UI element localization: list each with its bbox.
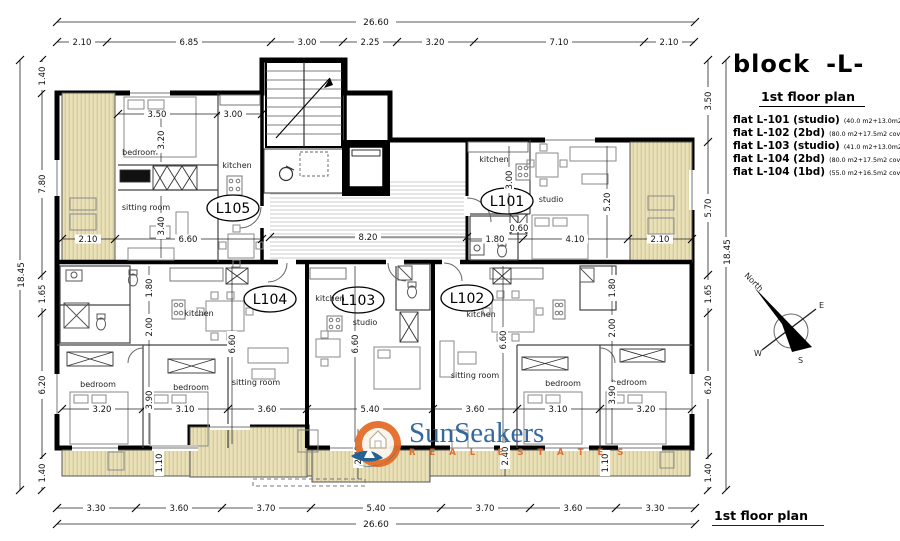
watermark-logo: SunSeakers R E A L E S T A T E S bbox=[350, 418, 629, 476]
dim-l101-kitchen-d: 3.00 bbox=[505, 171, 515, 190]
dim-right-wc-d: 1.80 bbox=[608, 279, 618, 298]
dim-l102-bed2-w: 3.20 bbox=[637, 405, 656, 415]
flat-area: (55.0 m2+16.5m2 cov.ver.) bbox=[825, 170, 900, 177]
dim-top-4: 3.20 bbox=[426, 38, 445, 48]
flat-area: (80.0 m2+17.5m2 cov.ver.) bbox=[825, 131, 900, 138]
flat-list-item: flat L-103 (studio) (41.0 m2+13.0m2 cov.… bbox=[733, 140, 897, 152]
flat-area: (80.0 m2+17.5m2 cov.ver.) bbox=[825, 157, 900, 164]
dim-left-2: 1.65 bbox=[38, 285, 48, 304]
block-title: block-L- bbox=[733, 50, 897, 78]
plan-title: 1st floor plan bbox=[759, 89, 865, 107]
dim-l101-studio-w: 4.10 bbox=[566, 235, 585, 245]
flat-list: flat L-101 (studio) (40.0 m2+13.0m2 cov.… bbox=[733, 114, 897, 178]
dim-right-2: 1.65 bbox=[704, 285, 714, 304]
dim-bot-4: 3.70 bbox=[476, 504, 495, 514]
dim-l101-bath-w: 1.80 bbox=[486, 235, 505, 245]
dim-left-wc-d: 1.80 bbox=[145, 279, 155, 298]
dim-corridor-l: 8.20 bbox=[359, 233, 378, 243]
compass-east-label: E bbox=[819, 301, 824, 310]
room-label-kitchen-l103: kitchen bbox=[315, 294, 344, 303]
dim-balcony-right-w: 2.10 bbox=[651, 235, 670, 245]
dim-l105-kitchen-w: 3.00 bbox=[224, 110, 243, 120]
flat-name: flat L-104 (2bd) bbox=[733, 153, 825, 165]
dim-top-6: 2.10 bbox=[660, 38, 679, 48]
room-label-bedroom-l104b: bedroom bbox=[173, 383, 209, 392]
dim-left-0: 1.40 bbox=[38, 67, 48, 86]
flat-list-item: flat L-102 (2bd) (80.0 m2+17.5m2 cov.ver… bbox=[733, 127, 897, 139]
floor-plan-page: L105 L101 L104 L103 L102 bedroom sitting… bbox=[0, 0, 900, 541]
dim-l104-d: 6.60 bbox=[228, 335, 238, 354]
dim-l102-d: 6.60 bbox=[499, 331, 509, 350]
room-label-bedroom-l104a: bedroom bbox=[80, 380, 116, 389]
dim-bot-1: 3.60 bbox=[170, 504, 189, 514]
flat-name: flat L-102 (2bd) bbox=[733, 127, 825, 139]
room-label-sitting-l104: sitting room bbox=[232, 378, 280, 387]
flat-name: flat L-104 (1bd) bbox=[733, 166, 825, 178]
room-label-kitchen-l105: kitchen bbox=[222, 161, 251, 170]
dim-l103-d: 6.60 bbox=[351, 335, 361, 354]
dim-l102-bed1-w: 3.10 bbox=[549, 405, 568, 415]
dim-bot-5: 3.60 bbox=[564, 504, 583, 514]
dim-right-total: 18.45 bbox=[723, 239, 733, 265]
disabled-wc bbox=[264, 149, 343, 193]
room-label-bedroom-l105: bedroom bbox=[122, 148, 158, 157]
dim-bottom-total: 26.60 bbox=[363, 520, 389, 530]
footer-plan-title: 1st floor plan bbox=[712, 508, 824, 526]
compass-north-label: North bbox=[743, 271, 765, 293]
compass-west-label: W bbox=[754, 349, 762, 358]
flat-area: (41.0 m2+13.0m2 cov.ver.) bbox=[840, 144, 900, 151]
dim-l101-hall-w: 0.60 bbox=[510, 224, 529, 234]
watermark-tagline: R E A L E S T A T E S bbox=[409, 448, 629, 458]
room-label-sitting-l102: sitting room bbox=[451, 371, 499, 380]
title-block: block-L- 1st floor plan flat L-101 (stud… bbox=[733, 50, 897, 178]
room-label-kitchen-l104: kitchen bbox=[184, 309, 213, 318]
dim-l105-bed-d: 3.20 bbox=[157, 131, 167, 150]
dim-left-1: 7.80 bbox=[38, 175, 48, 194]
dim-l104-bed1-w: 3.20 bbox=[93, 405, 112, 415]
room-label-studio-l103: studio bbox=[353, 318, 378, 327]
flat-list-item: flat L-104 (2bd) (80.0 m2+17.5m2 cov.ver… bbox=[733, 153, 897, 165]
dim-right-3: 6.20 bbox=[704, 376, 714, 395]
dim-right-4: 1.40 bbox=[704, 464, 714, 483]
dim-right-0: 3.50 bbox=[704, 92, 714, 111]
dim-top-1: 6.85 bbox=[180, 38, 199, 48]
block-title-name: -L- bbox=[826, 50, 864, 78]
dim-l105-sitting-d: 3.40 bbox=[157, 217, 167, 236]
dim-bot-2: 3.70 bbox=[257, 504, 276, 514]
compass-south-label: S bbox=[798, 356, 803, 365]
dim-l102-sitting-w: 3.60 bbox=[466, 405, 485, 415]
room-label-sitting-l105: sitting room bbox=[122, 203, 170, 212]
dim-l105-bed-w: 3.50 bbox=[148, 110, 167, 120]
dim-l103-studio-w: 5.40 bbox=[361, 405, 380, 415]
dim-left-hall-d: 2.00 bbox=[145, 318, 155, 337]
flat-list-item: flat L-101 (studio) (40.0 m2+13.0m2 cov.… bbox=[733, 114, 897, 126]
dim-right-1: 5.70 bbox=[704, 199, 714, 218]
dim-left-bed-d: 3.90 bbox=[145, 391, 155, 410]
room-label-kitchen-l102: kitchen bbox=[466, 310, 495, 319]
unit-label-l101: L101 bbox=[490, 194, 525, 210]
dim-bot-0: 3.30 bbox=[87, 504, 106, 514]
block-title-label: block bbox=[733, 50, 810, 78]
dim-right-hall-d: 2.00 bbox=[608, 319, 618, 338]
room-label-kitchen-l101: kitchen bbox=[479, 155, 508, 164]
flat-name: flat L-103 (studio) bbox=[733, 140, 840, 152]
dim-l105-w: 6.60 bbox=[179, 235, 198, 245]
compass: North E W S bbox=[743, 271, 824, 365]
dim-l104-bed2-w: 3.10 bbox=[176, 405, 195, 415]
unit-label-l102: L102 bbox=[450, 291, 485, 307]
flat-list-item: flat L-104 (1bd) (55.0 m2+16.5m2 cov.ver… bbox=[733, 166, 897, 178]
dim-l101-studio-d: 5.20 bbox=[603, 193, 613, 212]
flat-name: flat L-101 (studio) bbox=[733, 114, 840, 126]
sunseakers-logo-icon bbox=[350, 418, 406, 476]
dim-bot-3: 5.40 bbox=[367, 504, 386, 514]
dim-top-0: 2.10 bbox=[73, 38, 92, 48]
room-label-bedroom-l102a: bedroom bbox=[545, 379, 581, 388]
room-label-studio-l101: studio bbox=[539, 195, 564, 204]
dim-left-total: 18.45 bbox=[17, 262, 27, 288]
watermark-brand: SunSeakers bbox=[409, 418, 629, 448]
staircase bbox=[266, 62, 342, 147]
dim-top-5: 7.10 bbox=[550, 38, 569, 48]
dim-top-total: 26.60 bbox=[363, 18, 389, 28]
dim-right-bed-d: 3.90 bbox=[608, 386, 618, 405]
unit-label-l104: L104 bbox=[253, 292, 288, 308]
unit-label-l105: L105 bbox=[216, 201, 251, 217]
dim-balcony-left-w: 2.10 bbox=[79, 235, 98, 245]
dim-balcony-left-d: 1.10 bbox=[155, 454, 165, 473]
dim-left-3: 6.20 bbox=[38, 376, 48, 395]
dim-top-3: 2.25 bbox=[361, 38, 380, 48]
flat-area: (40.0 m2+13.0m2 cov.ver.) bbox=[840, 118, 900, 125]
dim-l104-sitting-w: 3.60 bbox=[258, 405, 277, 415]
unit-label-l103: L103 bbox=[341, 293, 376, 309]
dim-bot-6: 3.30 bbox=[646, 504, 665, 514]
dim-top-2: 3.00 bbox=[298, 38, 317, 48]
dim-left-4: 1.40 bbox=[38, 464, 48, 483]
elevator bbox=[342, 140, 390, 196]
